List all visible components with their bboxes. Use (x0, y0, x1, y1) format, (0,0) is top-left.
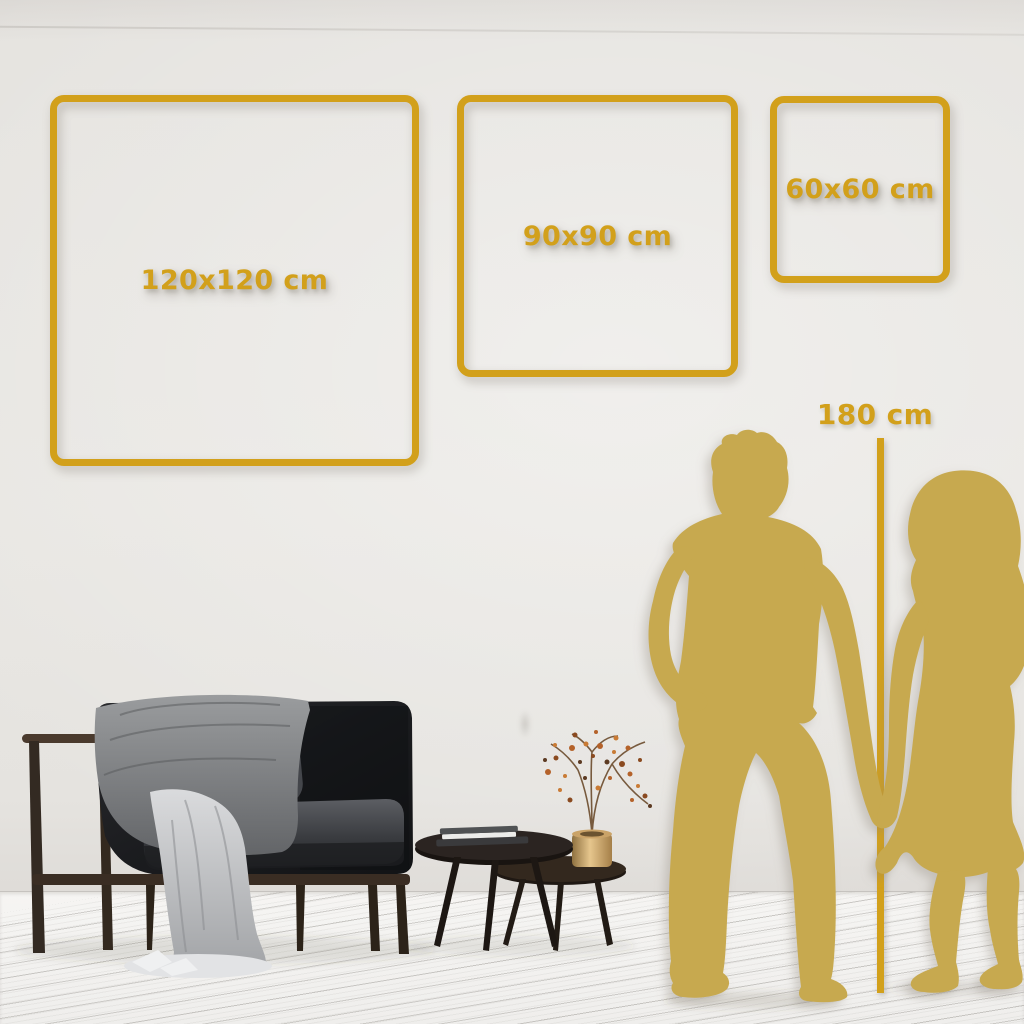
size-label-60: 60x60 cm (785, 176, 934, 203)
wall-art-size-guide: 120x120 cm 90x90 cm 60x60 cm 180 cm (0, 0, 1024, 1024)
woman-silhouette-icon (875, 470, 1024, 992)
couple-silhouettes (649, 430, 1024, 1002)
size-label-120: 120x120 cm (141, 267, 329, 294)
height-label: 180 cm (795, 401, 955, 429)
coffee-tables-icon (415, 730, 652, 951)
size-square-90: 90x90 cm (457, 95, 738, 377)
books-icon (436, 825, 529, 846)
size-label-90: 90x90 cm (523, 223, 672, 250)
plant-icon (543, 730, 652, 834)
size-square-60: 60x60 cm (770, 96, 950, 283)
size-square-120: 120x120 cm (50, 95, 419, 466)
man-silhouette-icon (649, 430, 892, 1002)
vase-icon (572, 830, 612, 868)
